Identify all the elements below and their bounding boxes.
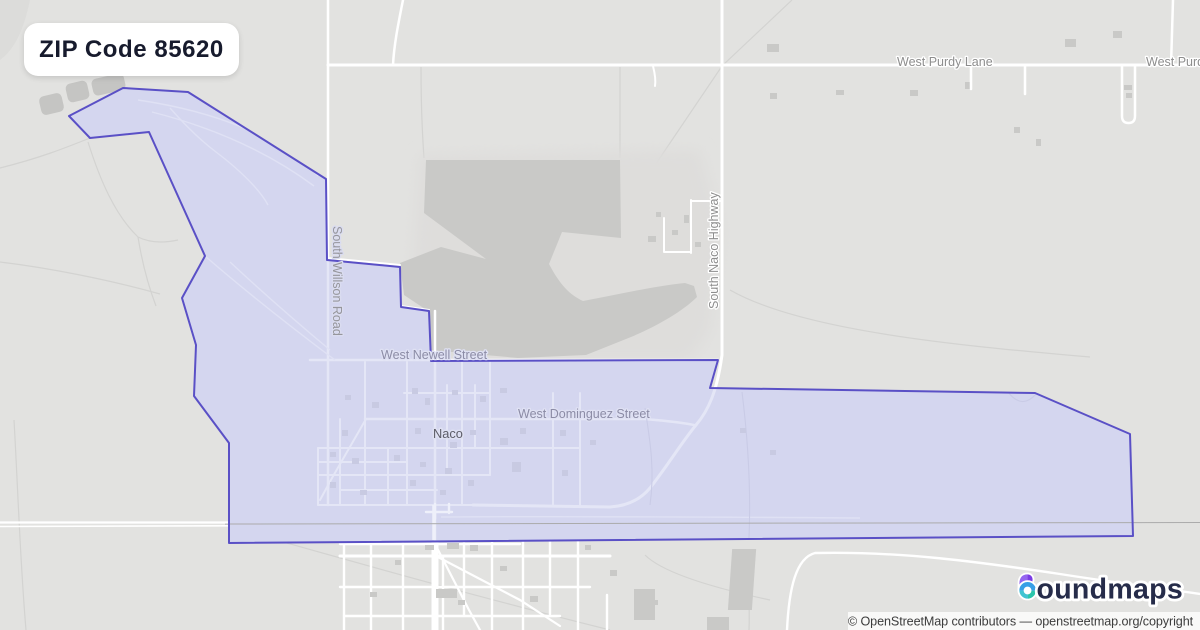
svg-text:West Purdy Lane: West Purdy Lane: [897, 55, 993, 69]
svg-text:West Newell Street: West Newell Street: [381, 348, 488, 362]
svg-text:West Purdy La: West Purdy La: [1146, 55, 1200, 69]
svg-text:oundmaps: oundmaps: [1037, 574, 1184, 606]
svg-text:© OpenStreetMap contributors —: © OpenStreetMap contributors — openstree…: [848, 615, 1194, 629]
svg-text:West Dominguez Street: West Dominguez Street: [518, 407, 650, 421]
svg-text:South Willson Road: South Willson Road: [330, 226, 344, 336]
svg-text:Naco: Naco: [433, 426, 463, 441]
svg-text:South Naco Highway: South Naco Highway: [707, 192, 721, 309]
